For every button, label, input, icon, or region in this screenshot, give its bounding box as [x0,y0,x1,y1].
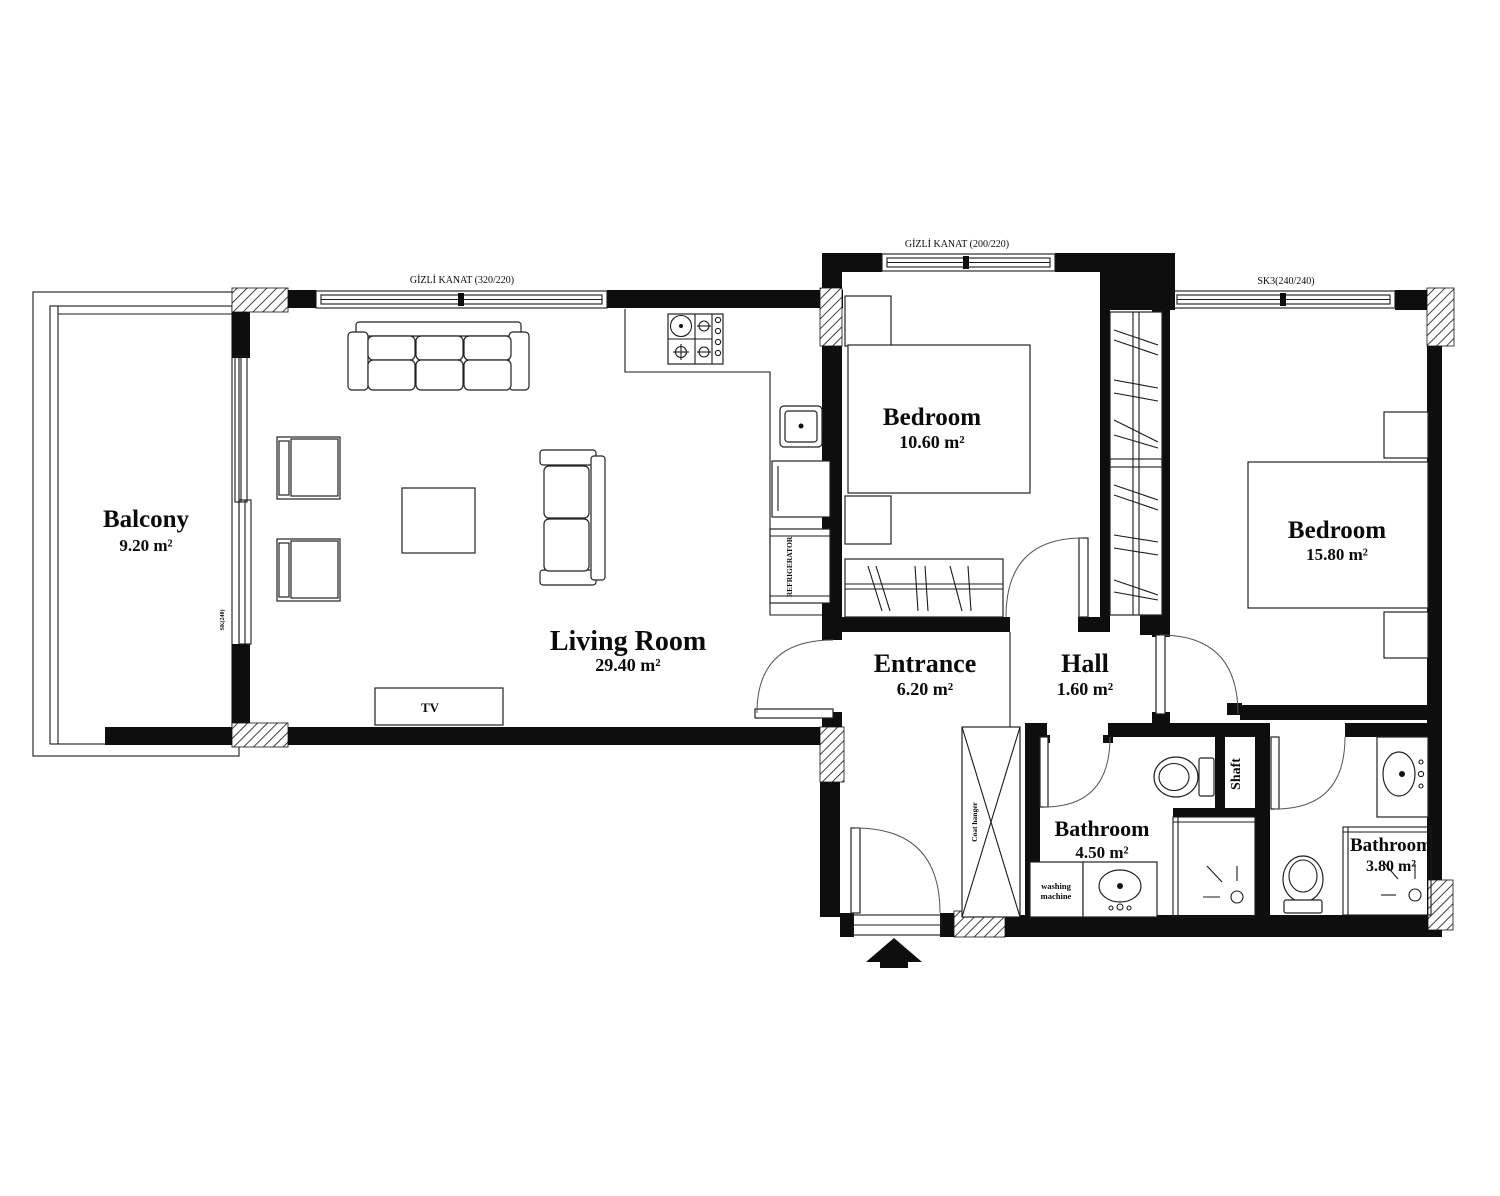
bedroom2-window-label: SK3(240/240) [1257,276,1314,287]
armchair-2 [277,539,340,601]
nightstand [1384,612,1428,658]
bathroom2-label: Bathroom [1350,835,1432,856]
bathroom2-area: 3.80 m² [1366,858,1416,875]
balcony-door-label: SK(240) [219,609,226,630]
bedroom2-label: Bedroom [1288,517,1386,544]
bedroom1-area: 10.60 m² [899,432,964,452]
nightstand [845,296,891,346]
living-room-window-label: GİZLİ KANAT (320/220) [410,274,514,286]
entrance-label: Entrance [874,649,977,678]
refrigerator-label: REFRIGERATOR [785,536,794,597]
bathroom1-area: 4.50 m² [1075,843,1128,862]
tv-unit: TV [375,688,503,725]
bathroom1-sink [1083,862,1157,917]
wardrobe [845,559,1003,617]
entrance-area: 6.20 m² [897,679,953,699]
toilet [1154,757,1214,797]
shaft-label: Shaft [1229,758,1244,790]
sofa [348,322,529,390]
nightstand [845,496,891,544]
toilet [1283,856,1323,913]
kitchen-sink [780,406,822,447]
balcony-area: 9.20 m² [119,536,172,555]
stove [668,314,723,364]
living-room-label: Living Room [550,626,706,657]
washing-machine-label-2: machine [1041,891,1072,901]
floor-plan: TV REFRIGERAT [0,0,1500,1196]
hall-label: Hall [1061,649,1109,678]
coat-hanger-label: Coat hanger [970,801,979,841]
balcony-label: Balcony [103,506,190,533]
coat-hanger-closet: Coat hanger [962,727,1020,917]
bathroom2-sink [1377,737,1428,817]
loveseat [540,450,605,585]
armchair-1 [277,437,340,499]
washing-machine: washing machine [1030,862,1083,917]
coffee-table [402,488,475,553]
bedroom1-label: Bedroom [883,404,981,431]
hall-wardrobe [1110,312,1162,615]
living-room-area: 29.40 m² [595,655,660,675]
tv-label: TV [421,700,440,715]
hall-area: 1.60 m² [1057,679,1113,699]
bedroom2-area: 15.80 m² [1306,545,1368,564]
oven [772,461,830,517]
bathroom1-label: Bathroom [1055,816,1150,841]
refrigerator: REFRIGERATOR [770,529,830,603]
bedroom1-window-label: GİZLİ KANAT (200/220) [905,238,1009,250]
washing-machine-label-1: washing [1041,881,1072,891]
floor-plan-page: TV REFRIGERAT [0,0,1500,1196]
nightstand [1384,412,1428,458]
